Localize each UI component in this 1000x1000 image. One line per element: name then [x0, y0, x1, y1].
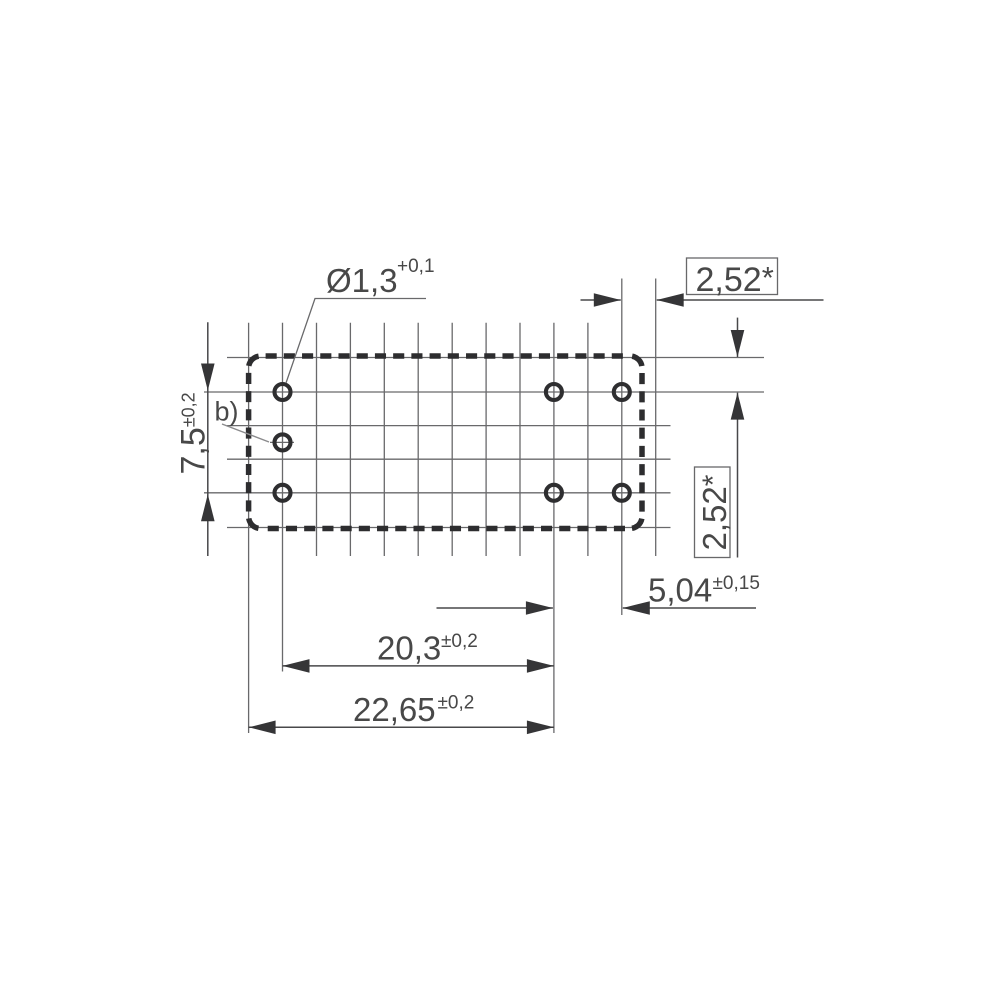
svg-text:2,52*: 2,52*: [696, 260, 774, 299]
svg-text:Ø1,3: Ø1,3: [326, 262, 398, 299]
svg-text:+0,1: +0,1: [397, 256, 435, 277]
svg-text:20,3: 20,3: [377, 630, 441, 667]
svg-text:±0,2: ±0,2: [441, 631, 478, 652]
svg-text:2,52*: 2,52*: [696, 474, 733, 550]
svg-text:22,65: 22,65: [353, 691, 436, 728]
svg-text:±0,15: ±0,15: [713, 573, 760, 594]
svg-text:b): b): [215, 397, 239, 427]
svg-text:5,04: 5,04: [648, 572, 712, 609]
svg-text:±0,2: ±0,2: [438, 693, 475, 714]
